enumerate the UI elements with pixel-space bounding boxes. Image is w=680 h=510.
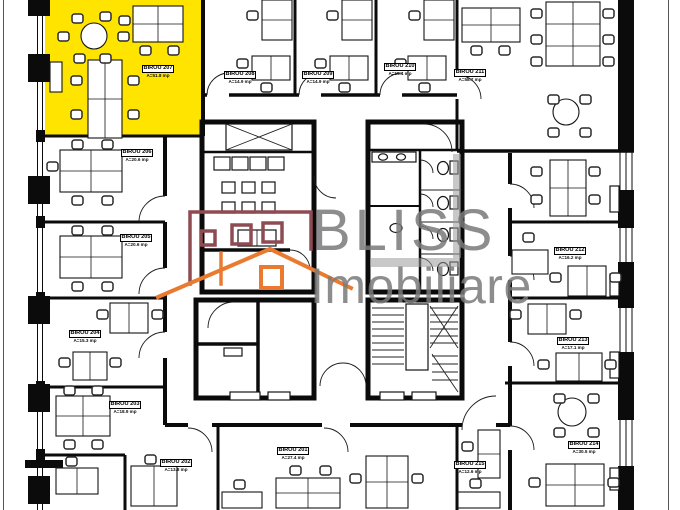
watermark-brand: BLISS — [312, 198, 496, 263]
double-door — [320, 363, 366, 386]
watermark: BLISS Imobiliare — [158, 198, 532, 314]
staircase — [372, 304, 458, 400]
shaft — [226, 124, 292, 150]
floor-plan: BLISS Imobiliare BIROU 207 A=51.8 mp BIR… — [0, 0, 680, 510]
elevator-room — [196, 300, 290, 400]
watermark-suffix: Imobiliare — [310, 258, 532, 314]
floor-plan-drawing: BLISS Imobiliare — [0, 0, 680, 510]
